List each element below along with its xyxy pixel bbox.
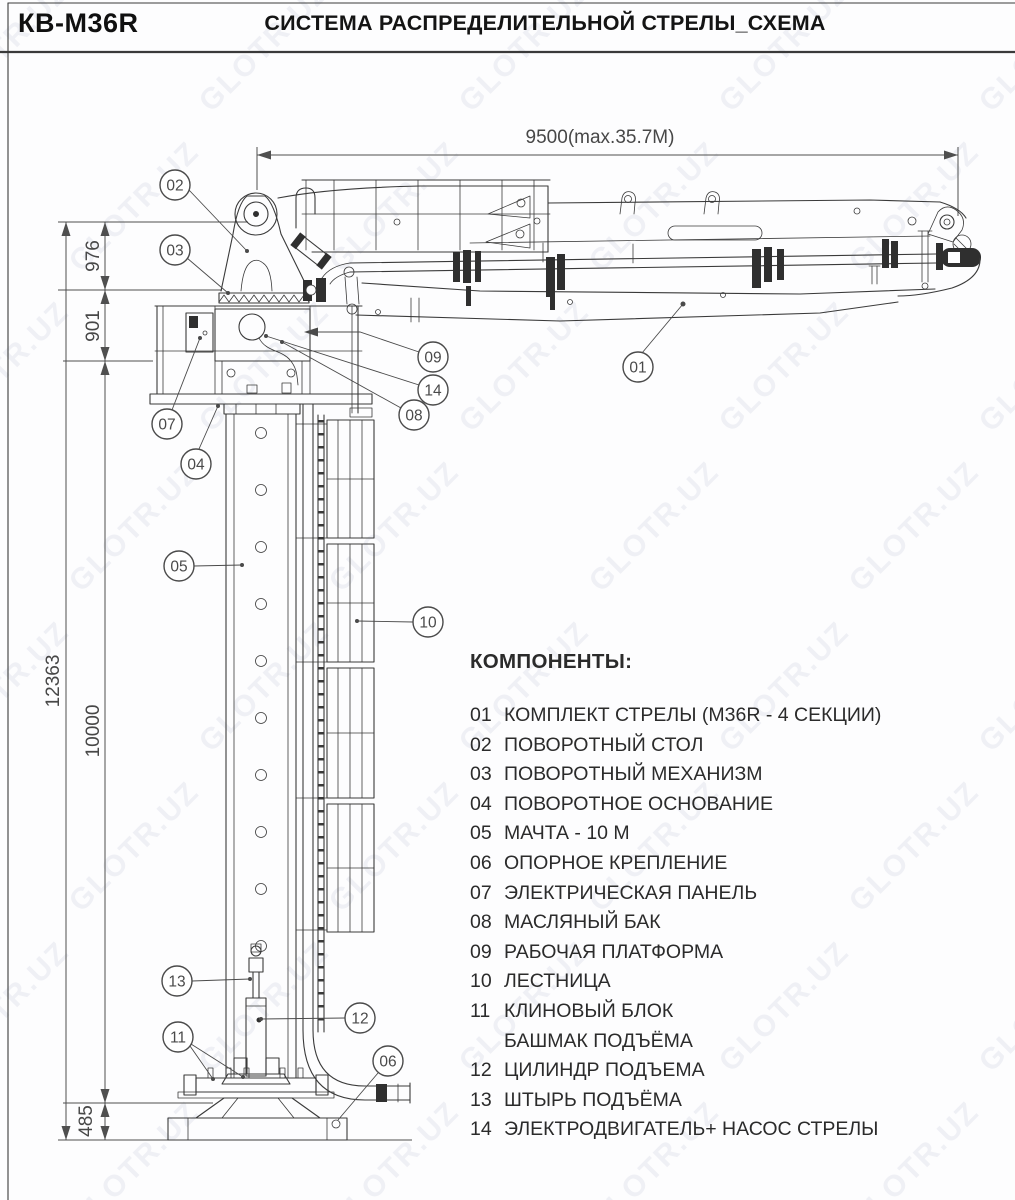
ladder bbox=[296, 415, 374, 1032]
dimension-total-height: 12363 bbox=[43, 222, 71, 1140]
dim-total-height-label: 12363 bbox=[43, 655, 64, 708]
boom-tip bbox=[854, 202, 981, 296]
dim-boom-length-label: 9500(max.35.7M) bbox=[526, 127, 675, 148]
callout-02: 02 bbox=[160, 170, 190, 200]
svg-text:01: 01 bbox=[629, 360, 646, 377]
svg-text:05: 05 bbox=[170, 559, 187, 576]
component-item: 07ЭЛЕКТРИЧЕСКАЯ ПАНЕЛЬ bbox=[470, 879, 881, 909]
callout-09: 09 bbox=[418, 342, 448, 372]
callout-04: 04 bbox=[181, 449, 211, 479]
callout-10: 10 bbox=[413, 607, 443, 637]
boom-cylinder bbox=[290, 232, 331, 269]
component-item: 05МАЧТА - 10 М bbox=[470, 819, 881, 849]
svg-text:09: 09 bbox=[424, 350, 441, 367]
callout-11: 11 bbox=[163, 1022, 193, 1052]
component-item: 13ШТЫРЬ ПОДЪЁМА bbox=[470, 1086, 881, 1116]
page: GLOTR.UZGLOTR.UZGLOTR.UZGLOTR.UZGLOTR.UZ… bbox=[0, 0, 1015, 1200]
dim-platform-height-label: 901 bbox=[83, 310, 104, 342]
component-item: 10ЛЕСТНИЦА bbox=[470, 967, 881, 997]
callout-14: 14 bbox=[418, 375, 448, 405]
boom-guardrail bbox=[278, 180, 550, 252]
lift-cylinder bbox=[222, 944, 290, 1084]
svg-text:11: 11 bbox=[170, 1030, 186, 1047]
component-item: 14ЭЛЕКТРОДВИГАТЕЛЬ+ НАСОС СТРЕЛЫ bbox=[470, 1115, 881, 1145]
svg-text:14: 14 bbox=[424, 383, 442, 400]
components-list: 01КОМПЛЕКТ СТРЕЛЫ (M36R - 4 СЕКЦИИ) 02ПО… bbox=[470, 701, 881, 1145]
component-item: 03ПОВОРОТНЫЙ МЕХАНИЗМ bbox=[470, 760, 881, 790]
component-item: БАШМАК ПОДЪЁМА bbox=[470, 1027, 881, 1057]
boom-sections bbox=[303, 192, 943, 322]
component-item: 09РАБОЧАЯ ПЛАТФОРМА bbox=[470, 938, 881, 968]
base-support bbox=[168, 1068, 347, 1140]
svg-text:02: 02 bbox=[166, 178, 183, 195]
callout-03: 03 bbox=[160, 235, 190, 265]
callout-01: 01 bbox=[623, 352, 653, 382]
component-item: 04ПОВОРОТНОЕ ОСНОВАНИЕ bbox=[470, 790, 881, 820]
svg-text:10: 10 bbox=[419, 615, 437, 632]
callout-13: 13 bbox=[162, 966, 192, 996]
component-item: 02ПОВОРОТНЫЙ СТОЛ bbox=[470, 731, 881, 761]
svg-text:13: 13 bbox=[168, 974, 185, 991]
slewing-mechanism bbox=[219, 293, 309, 303]
boom-assembly bbox=[219, 180, 981, 322]
svg-text:12: 12 bbox=[351, 1011, 368, 1028]
ladder-cage bbox=[327, 420, 374, 932]
component-item: 12ЦИЛИНДР ПОДЪЕМА bbox=[470, 1056, 881, 1086]
working-platform bbox=[150, 306, 372, 417]
component-item: 11КЛИНОВЫЙ БЛОК bbox=[470, 997, 881, 1027]
dim-turret-height-label: 976 bbox=[83, 240, 104, 272]
dim-mast-height-label: 10000 bbox=[83, 705, 104, 758]
callout-12: 12 bbox=[345, 1003, 375, 1033]
components-heading: КОМПОНЕНТЫ: bbox=[470, 650, 881, 674]
dim-base-height-label: 485 bbox=[76, 1105, 97, 1137]
callout-05: 05 bbox=[164, 551, 194, 581]
components-legend: КОМПОНЕНТЫ: 01КОМПЛЕКТ СТРЕЛЫ (M36R - 4 … bbox=[470, 650, 881, 1145]
dimension-chain: 976 901 10000 485 bbox=[58, 222, 412, 1140]
component-item: 08МАСЛЯНЫЙ БАК bbox=[470, 908, 881, 938]
mast bbox=[226, 414, 296, 1078]
svg-text:08: 08 bbox=[405, 408, 422, 425]
callout-06: 06 bbox=[373, 1046, 403, 1076]
svg-text:04: 04 bbox=[187, 457, 205, 474]
svg-text:07: 07 bbox=[158, 417, 175, 434]
callout-07: 07 bbox=[152, 409, 182, 439]
callout-08: 08 bbox=[399, 400, 429, 430]
concrete-pipe bbox=[303, 404, 410, 1103]
svg-text:03: 03 bbox=[166, 243, 183, 260]
component-item: 01КОМПЛЕКТ СТРЕЛЫ (M36R - 4 СЕКЦИИ) bbox=[470, 701, 881, 731]
svg-text:06: 06 bbox=[379, 1054, 396, 1071]
component-item: 06ОПОРНОЕ КРЕПЛЕНИЕ bbox=[470, 849, 881, 879]
